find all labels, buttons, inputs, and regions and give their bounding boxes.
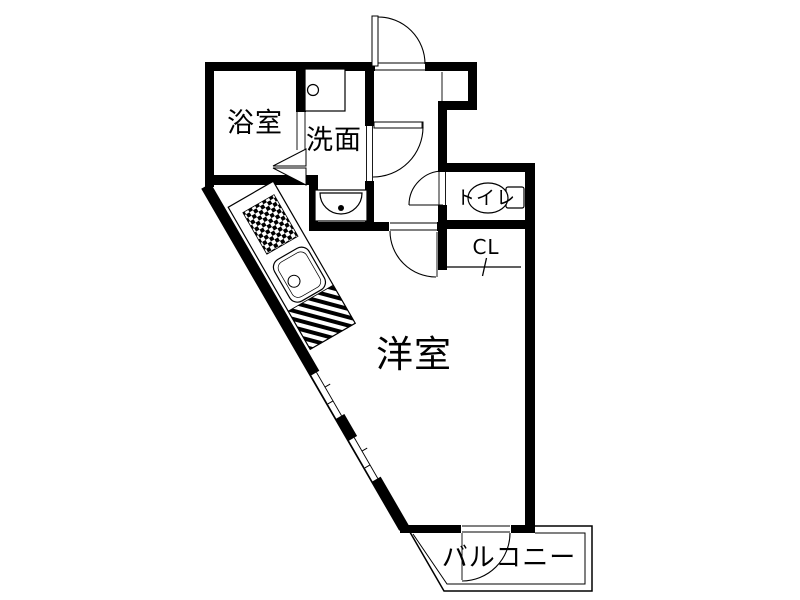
washbasin: [315, 190, 367, 221]
balcony-opening: [461, 524, 511, 534]
washroom-opening: [364, 126, 375, 181]
wall-toilet-north: [438, 163, 535, 172]
balcony-label: バルコニー: [442, 543, 576, 573]
washbasin-faucet: [338, 205, 344, 211]
washing-machine-pan: [305, 69, 345, 111]
wall-south-right: [510, 525, 535, 533]
wall-washroom-south: [309, 222, 390, 231]
floor-plan: 浴室 洗面 トイレ CL 洋室 バルコニー: [0, 0, 800, 600]
wall-west: [205, 62, 214, 187]
toilet-label: トイレ: [456, 187, 516, 209]
entrance-door-leaf: [372, 16, 378, 66]
wall-toilet-closet-divider: [447, 220, 535, 229]
washroom-label: 洗面: [306, 125, 362, 156]
wall-washroom-east-upper: [365, 62, 374, 126]
wall-corridor-east: [438, 101, 447, 168]
wall-top-left: [205, 62, 375, 71]
washroom-door-leaf: [374, 122, 423, 128]
western-room-label: 洋室: [376, 333, 452, 376]
wall-east: [525, 163, 535, 533]
bathroom-label: 浴室: [227, 108, 283, 139]
wall-closet-west: [438, 205, 447, 270]
background: [0, 0, 800, 600]
washing-machine-drain: [308, 85, 319, 96]
closet-label: CL: [472, 235, 499, 259]
